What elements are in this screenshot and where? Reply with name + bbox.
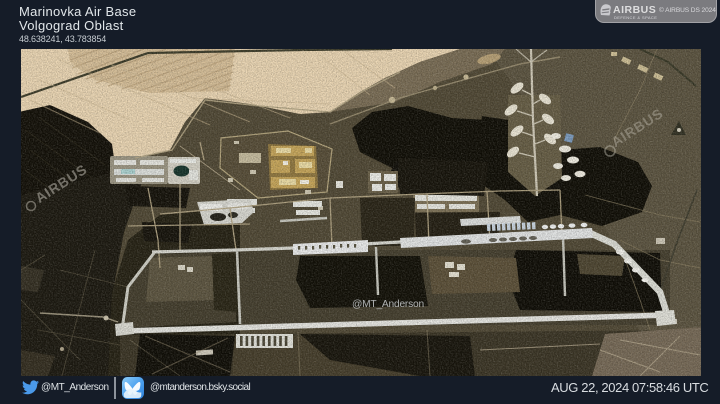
svg-text:@MT_Anderson: @MT_Anderson [352,299,424,310]
